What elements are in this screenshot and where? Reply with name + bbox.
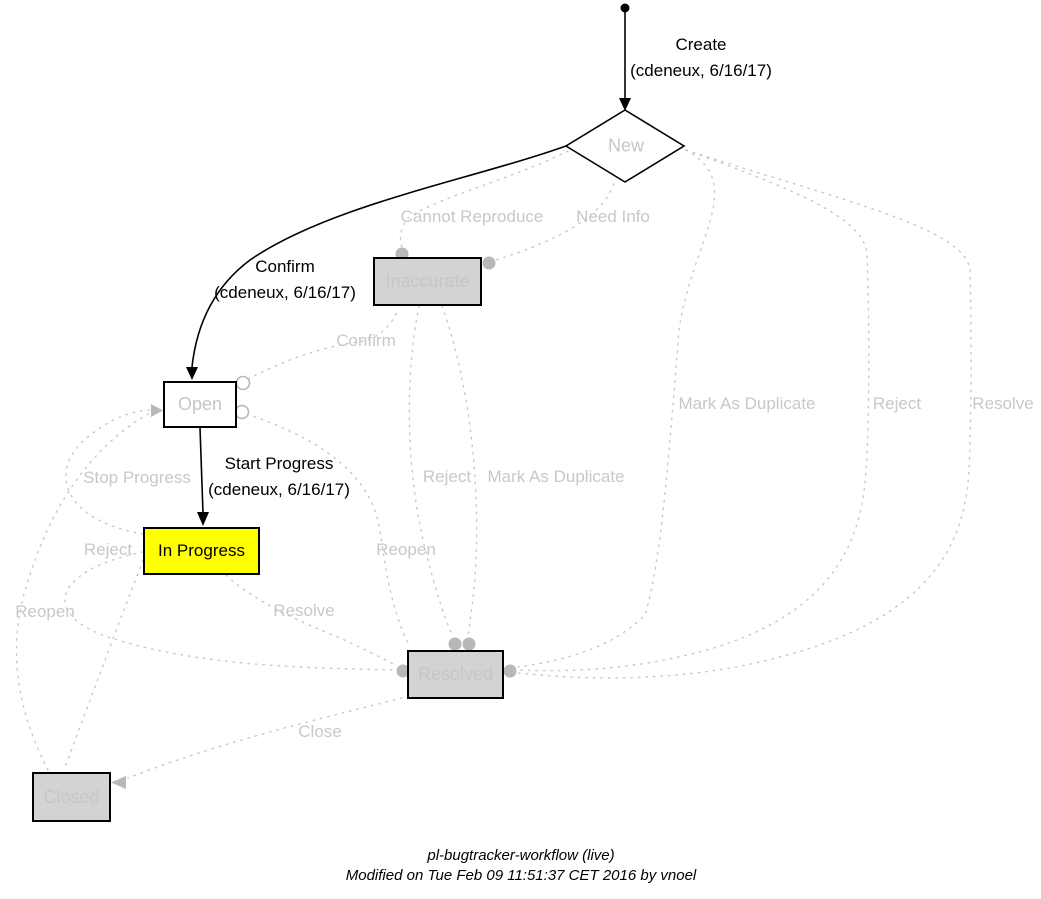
transition-confirm-by: (cdeneux, 6/16/17) [214,280,356,306]
state-new-label: New [608,136,644,157]
edge-to-closed-top [64,560,143,770]
transition-label-confirm-gray: Confirm [336,331,396,351]
arrowhead-start-progress [197,512,209,526]
origin-circle-open-top [237,377,250,390]
transition-label-start-progress: Start Progress (cdeneux, 6/16/17) [208,451,350,503]
edge-start-progress [200,428,203,513]
state-open-label: Open [178,394,222,415]
transition-label-cannot-reproduce: Cannot Reproduce [401,207,544,227]
arrowhead-create [619,98,631,111]
state-closed: Closed [32,772,111,822]
state-inaccurate-label: Inaccurate [385,271,469,292]
transition-label-create: Create (cdeneux, 6/16/17) [630,32,772,84]
origin-circle-open-bottom [236,406,249,419]
transition-label-close: Close [298,722,341,742]
endpoint-dot-inaccurate-right [483,257,496,270]
state-in-progress: In Progress [143,527,260,575]
state-in-progress-label: In Progress [158,541,245,561]
edge-cannot-reproduce [400,151,568,247]
transition-start-progress-name: Start Progress [208,451,350,477]
transition-label-reopen-left: Reopen [15,602,75,622]
endpoint-dot-resolved-top-right [463,638,476,651]
transition-label-stop-progress: Stop Progress [83,468,191,488]
transition-label-resolve-right: Resolve [972,394,1033,414]
footer-modified: Modified on Tue Feb 09 11:51:37 CET 2016… [346,867,697,884]
state-resolved-label: Resolved [418,664,493,685]
state-inaccurate: Inaccurate [373,257,482,306]
workflow-start-dot [621,4,630,13]
edges-layer [0,0,1041,899]
transition-label-reject-left: Reject [84,540,132,560]
state-closed-label: Closed [43,787,99,808]
transition-confirm-name: Confirm [214,254,356,280]
footer-title: pl-bugtracker-workflow (live) [427,847,614,864]
transition-label-resolve-mid: Resolve [273,601,334,621]
transition-label-reopen-mid: Reopen [376,540,436,560]
endpoint-dot-resolved-right [504,665,517,678]
transition-label-reject-mid: Reject [423,467,471,487]
transition-label-need-info: Need Info [576,207,650,227]
edge-close [128,696,409,778]
transition-create-by: (cdeneux, 6/16/17) [630,58,772,84]
state-resolved: Resolved [407,650,504,699]
transition-label-mark-as-duplicate-mid: Mark As Duplicate [488,467,625,487]
endpoint-dot-resolved-top-left [449,638,462,651]
arrowhead-into-closed-right [111,776,126,789]
state-open: Open [163,381,237,428]
transition-label-confirm: Confirm (cdeneux, 6/16/17) [214,254,356,306]
workflow-diagram: New Open In Progress Inaccurate Resolved… [0,0,1041,899]
arrowhead-into-open-left [151,404,163,417]
arrowhead-confirm [186,367,198,380]
transition-create-name: Create [630,32,772,58]
transition-label-mark-as-duplicate-right: Mark As Duplicate [679,394,816,414]
edge-reopen-left [16,413,150,770]
transition-label-reject-right: Reject [873,394,921,414]
transition-start-progress-by: (cdeneux, 6/16/17) [208,477,350,503]
